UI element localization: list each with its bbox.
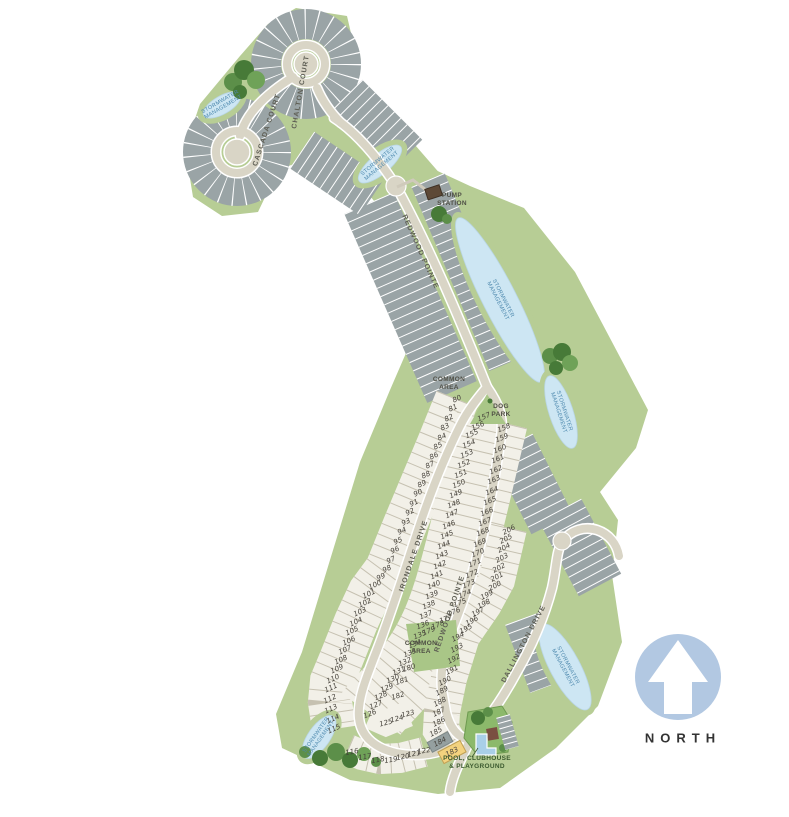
- tree-icon: [483, 707, 493, 717]
- culdesac-island: [294, 52, 318, 76]
- north-arrow: [635, 634, 721, 720]
- common-area-patch: [406, 620, 460, 672]
- tree-icon: [312, 750, 328, 766]
- north-label: NORTH: [645, 731, 721, 746]
- tree-icon: [357, 747, 371, 761]
- tree-icon: [247, 71, 265, 89]
- tree-icon: [549, 361, 563, 375]
- site-plan-map: 8081828384858687888990919293949596979899…: [0, 0, 789, 817]
- culdesac-island: [224, 139, 250, 165]
- tree-icon: [299, 746, 311, 758]
- tree-icon: [342, 752, 358, 768]
- clubhouse-building: [486, 727, 499, 741]
- tree-icon: [562, 355, 578, 371]
- site-plan-graphic: [0, 0, 789, 817]
- tree-icon: [471, 711, 485, 725]
- numbered-lot-band: [370, 714, 408, 723]
- tree-icon: [371, 757, 381, 767]
- tree-icon: [233, 85, 247, 99]
- tree-icon: [442, 214, 452, 224]
- dog-park-tree-icon: [488, 399, 493, 404]
- road-bulge: [553, 532, 571, 550]
